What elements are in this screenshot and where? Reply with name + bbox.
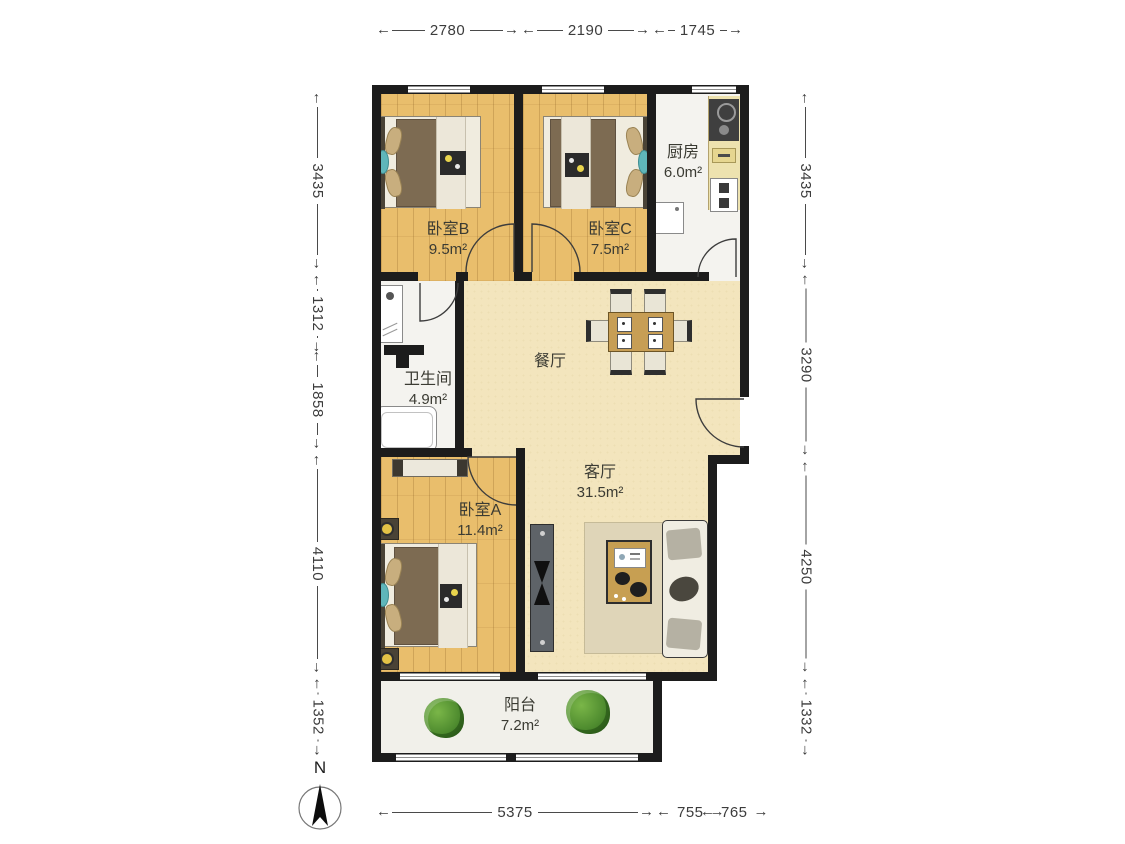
- room-name: 卧室B: [398, 220, 498, 240]
- dimension-value: 4110: [310, 542, 327, 586]
- arrow-right-icon: →: [310, 659, 326, 676]
- arrow-right-icon: →: [798, 255, 814, 272]
- dimension-right-2: ← 3290 →: [799, 272, 815, 459]
- dimension-left-4: ← 4110 →: [310, 452, 326, 676]
- door-arc-bedroom-a: [468, 457, 516, 505]
- arrow-right-icon: →: [503, 22, 520, 38]
- dimension-left-5: ← 1352 →: [311, 676, 327, 757]
- arrow-right-icon: →: [311, 742, 327, 759]
- dimension-right-3: ← 4250 →: [799, 459, 815, 676]
- arrow-right-icon: →: [799, 442, 815, 459]
- door-arc-kitchen: [698, 239, 736, 277]
- arrow-right-icon: →: [638, 804, 655, 820]
- arrow-left-icon: ←: [799, 676, 815, 693]
- arrow-right-icon: →: [727, 22, 744, 38]
- compass-rose-icon: [295, 779, 345, 833]
- arrow-left-icon: ←: [310, 90, 326, 107]
- floor-plan-canvas: 卧室B 9.5m² 卧室C 7.5m² 厨房 6.0m² 卫生间 4.9m² 餐…: [0, 0, 1125, 844]
- room-area: 31.5m²: [550, 483, 650, 503]
- dimension-top-3: ← 1745 →: [651, 22, 744, 38]
- dimension-left-1: ← 3435 →: [310, 90, 326, 272]
- dimension-left-3: ← 1858 →: [310, 348, 326, 452]
- dimension-value: 1745: [675, 22, 720, 39]
- room-label-bedroom-a: 卧室A 11.4m²: [430, 501, 530, 541]
- arrow-right-icon: →: [310, 255, 326, 272]
- door-arc-bathroom: [420, 283, 458, 321]
- dimension-value: 1858: [310, 377, 327, 422]
- room-label-bathroom: 卫生间 4.9m²: [378, 370, 478, 410]
- dimension-value: 1352: [310, 695, 327, 740]
- dimension-value: 3435: [310, 158, 327, 203]
- room-name: 卧室A: [430, 501, 530, 521]
- dimension-top-1: ← 2780 →: [375, 22, 520, 38]
- room-label-living: 客厅 31.5m²: [550, 463, 650, 503]
- door-arc-entry: [696, 399, 744, 447]
- compass-north-label: N: [288, 758, 352, 778]
- arrow-left-icon: ←: [799, 459, 815, 476]
- dimension-value: 4250: [798, 544, 815, 589]
- dimension-value: 3435: [798, 158, 815, 203]
- room-area: 6.0m²: [633, 163, 733, 183]
- arrow-left-icon: ←: [310, 348, 326, 365]
- room-name: 阳台: [470, 696, 570, 716]
- room-label-bedroom-c: 卧室C 7.5m²: [560, 220, 660, 260]
- arrow-left-icon: ←: [699, 804, 716, 820]
- room-area: 7.5m²: [560, 240, 660, 260]
- arrow-left-icon: ←: [651, 22, 668, 38]
- dimension-value: 5375: [492, 804, 537, 821]
- dimension-right-4: ← 1332 →: [799, 676, 815, 757]
- dimension-bottom-2: ← 755 →: [655, 804, 699, 820]
- arrow-right-icon: →: [799, 659, 815, 676]
- dimension-bottom-3: ← 765 →: [699, 804, 745, 820]
- room-name: 厨房: [633, 143, 733, 163]
- arrow-left-icon: ←: [310, 272, 326, 289]
- dimension-left-2: ← 1312 →: [310, 272, 326, 348]
- arrow-left-icon: ←: [375, 804, 392, 820]
- dimension-value: 1312: [310, 291, 327, 336]
- room-label-bedroom-b: 卧室B 9.5m²: [398, 220, 498, 260]
- arrow-left-icon: ←: [310, 452, 326, 469]
- room-area: 4.9m²: [378, 390, 478, 410]
- room-label-dining: 餐厅: [500, 352, 600, 372]
- arrow-left-icon: ←: [311, 676, 327, 693]
- dimension-top-2: ← 2190 →: [520, 22, 651, 38]
- dimension-value: 2190: [563, 22, 608, 39]
- arrow-left-icon: ←: [798, 90, 814, 107]
- dimension-value: 1332: [798, 695, 815, 740]
- arrow-right-icon: →: [634, 22, 651, 38]
- room-name: 卧室C: [560, 220, 660, 240]
- arrow-right-icon: →: [799, 742, 815, 759]
- room-name: 客厅: [550, 463, 650, 483]
- arrow-left-icon: ←: [799, 272, 815, 289]
- room-area: 11.4m²: [430, 521, 530, 541]
- room-area: 7.2m²: [470, 716, 570, 736]
- dimension-right-1: ← 3435 →: [798, 90, 814, 272]
- room-label-balcony: 阳台 7.2m²: [470, 696, 570, 736]
- dimension-value: 2780: [425, 22, 470, 39]
- dimension-bottom-1: ← 5375 →: [375, 804, 655, 820]
- arrow-left-icon: ←: [655, 804, 672, 820]
- dimension-value: 765: [716, 804, 753, 821]
- arrow-left-icon: ←: [520, 22, 537, 38]
- arrow-right-icon: →: [753, 804, 770, 820]
- compass: N: [288, 758, 352, 838]
- room-area: 9.5m²: [398, 240, 498, 260]
- arrow-left-icon: ←: [375, 22, 392, 38]
- room-label-kitchen: 厨房 6.0m²: [633, 143, 733, 183]
- arrow-right-icon: →: [310, 435, 326, 452]
- dimension-value: 3290: [798, 342, 815, 387]
- room-name: 餐厅: [500, 352, 600, 372]
- room-name: 卫生间: [378, 370, 478, 390]
